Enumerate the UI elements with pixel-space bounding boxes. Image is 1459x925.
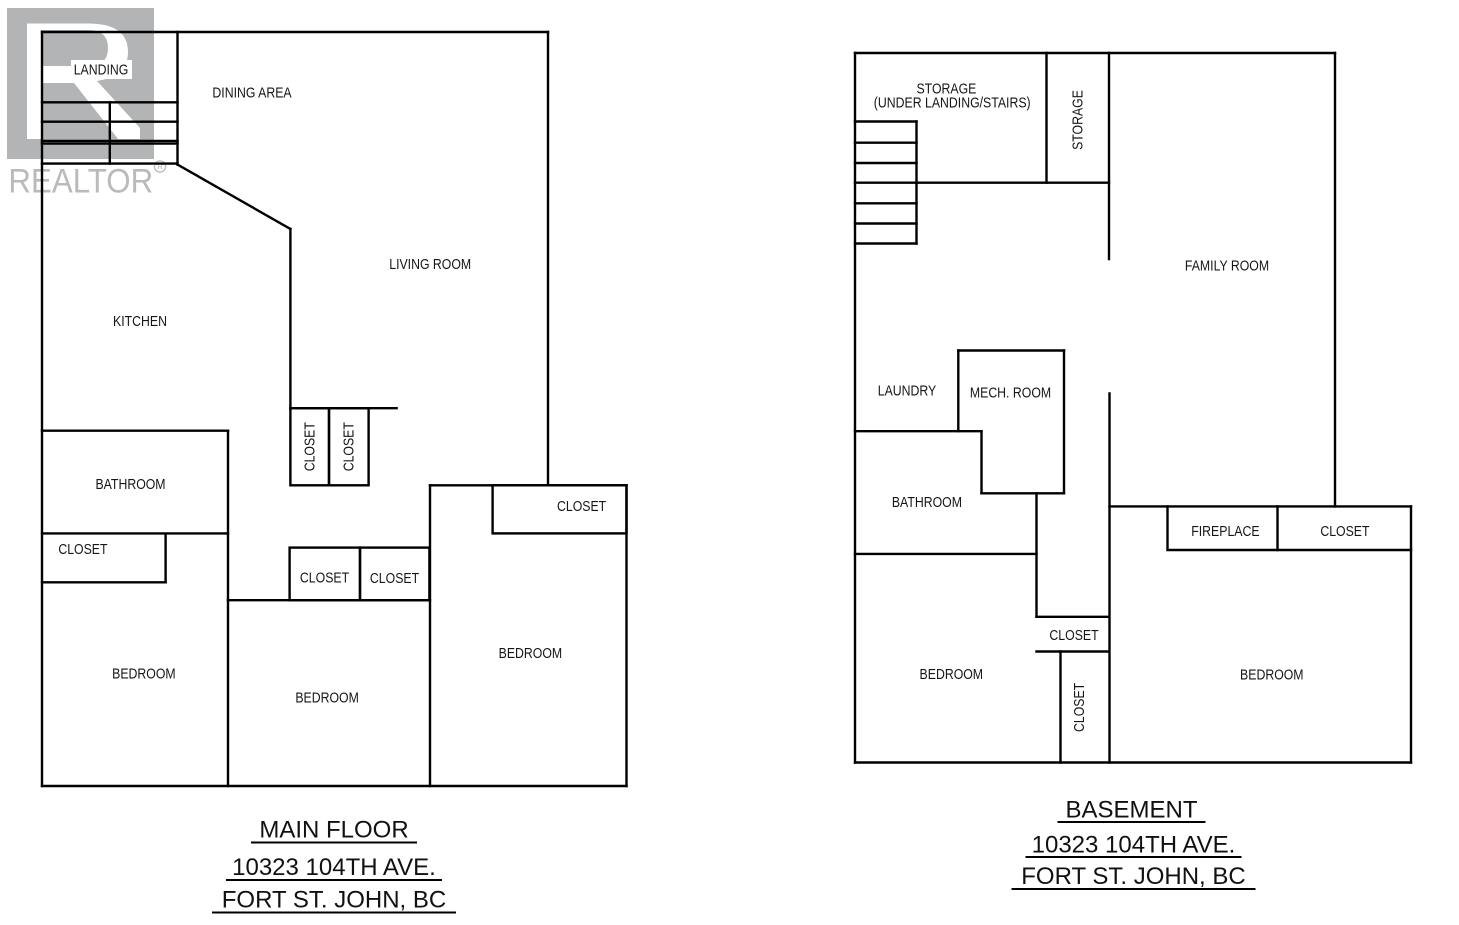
- svg-text:LAUNDRY: LAUNDRY: [878, 383, 937, 399]
- svg-text:BEDROOM: BEDROOM: [499, 645, 562, 661]
- svg-text:BATHROOM: BATHROOM: [892, 494, 962, 510]
- svg-text:(UNDER LANDING/STAIRS): (UNDER LANDING/STAIRS): [874, 94, 1031, 110]
- svg-text:BEDROOM: BEDROOM: [920, 666, 983, 682]
- svg-text:CLOSET: CLOSET: [340, 422, 356, 472]
- svg-text:BEDROOM: BEDROOM: [1240, 666, 1303, 682]
- svg-text:CLOSET: CLOSET: [370, 570, 420, 586]
- svg-text:CLOSET: CLOSET: [557, 498, 607, 514]
- svg-text:KITCHEN: KITCHEN: [113, 313, 167, 329]
- svg-text:BATHROOM: BATHROOM: [95, 476, 165, 492]
- svg-text:CLOSET: CLOSET: [1320, 523, 1370, 539]
- svg-text:LANDING: LANDING: [74, 61, 129, 77]
- svg-text:MAIN FLOOR: MAIN FLOOR: [259, 816, 408, 843]
- svg-text:CLOSET: CLOSET: [300, 569, 350, 585]
- svg-text:STORAGE: STORAGE: [1069, 90, 1085, 150]
- svg-text:CLOSET: CLOSET: [301, 422, 317, 472]
- svg-text:BEDROOM: BEDROOM: [112, 666, 175, 682]
- svg-text:FORT ST. JOHN, BC: FORT ST. JOHN, BC: [1021, 863, 1245, 890]
- svg-text:BASEMENT: BASEMENT: [1065, 796, 1197, 823]
- svg-text:FIREPLACE: FIREPLACE: [1191, 523, 1259, 539]
- svg-text:CLOSET: CLOSET: [1049, 627, 1099, 643]
- svg-text:LIVING ROOM: LIVING ROOM: [389, 256, 471, 272]
- svg-text:10323 104TH AVE.: 10323 104TH AVE.: [232, 854, 436, 881]
- svg-text:BEDROOM: BEDROOM: [295, 689, 358, 705]
- svg-text:DINING AREA: DINING AREA: [212, 85, 292, 101]
- svg-text:FAMILY ROOM: FAMILY ROOM: [1185, 257, 1269, 273]
- svg-text:10323 104TH AVE.: 10323 104TH AVE.: [1032, 831, 1236, 858]
- svg-text:CLOSET: CLOSET: [1071, 682, 1087, 732]
- svg-text:MECH. ROOM: MECH. ROOM: [970, 384, 1051, 400]
- svg-text:FORT ST. JOHN, BC: FORT ST. JOHN, BC: [222, 887, 446, 914]
- svg-text:CLOSET: CLOSET: [58, 541, 108, 557]
- svg-text:REALTOR: REALTOR: [8, 161, 153, 200]
